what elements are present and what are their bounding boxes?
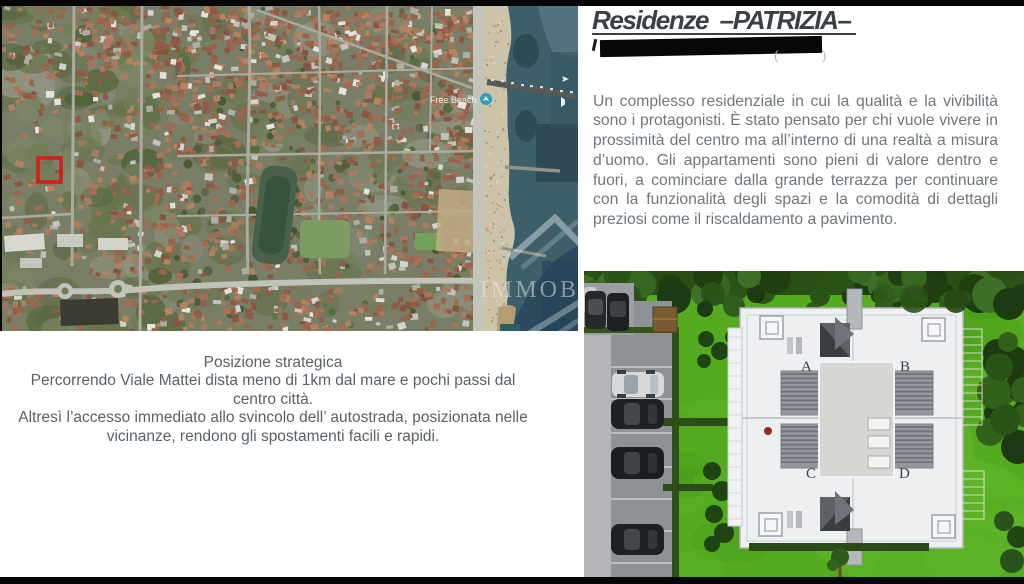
svg-text:A: A xyxy=(801,359,812,375)
svg-text:B: B xyxy=(900,359,910,375)
svg-text:Free Beach: Free Beach xyxy=(430,95,477,105)
svg-text:IMMOBILI: IMMOBILI xyxy=(480,277,578,303)
svg-text:C: C xyxy=(806,466,816,482)
svg-text:D: D xyxy=(899,466,910,482)
